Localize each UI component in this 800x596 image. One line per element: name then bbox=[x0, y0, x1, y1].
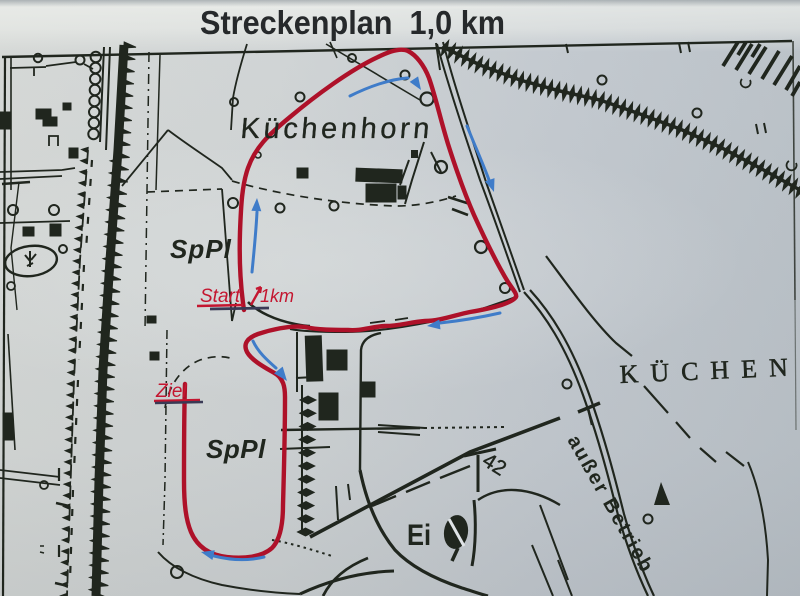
svg-text:Streckenplan 1,0 km: Streckenplan 1,0 km bbox=[200, 4, 505, 41]
svg-text:SpPl: SpPl bbox=[170, 234, 232, 264]
svg-text:Ei: Ei bbox=[407, 518, 431, 551]
svg-text:Ziel: Ziel bbox=[155, 381, 187, 402]
svg-text:Start: Start bbox=[200, 286, 241, 307]
svg-text:SpPl: SpPl bbox=[206, 434, 266, 464]
svg-text:Küchenhorn: Küchenhorn bbox=[239, 113, 434, 145]
svg-text:1km: 1km bbox=[260, 286, 294, 306]
